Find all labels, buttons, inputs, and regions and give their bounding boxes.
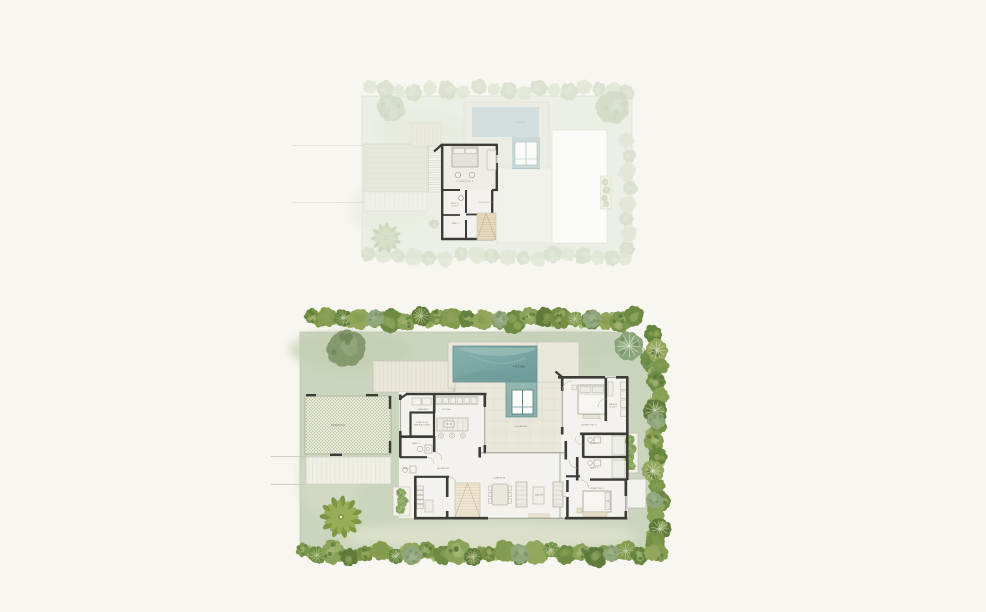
svg-text:RECIBIDOR: RECIBIDOR xyxy=(437,468,449,470)
svg-text:DORMITORIO 1: DORMITORIO 1 xyxy=(589,488,605,490)
svg-text:INSTALACIONES: INSTALACIONES xyxy=(414,424,431,427)
svg-text:BAÑO 4: BAÑO 4 xyxy=(412,442,420,445)
svg-text:COCINA: COCINA xyxy=(442,408,451,411)
svg-text:PARKING: PARKING xyxy=(331,423,345,427)
svg-text:ASEO: ASEO xyxy=(403,467,409,470)
svg-text:WALK-IN: WALK-IN xyxy=(451,202,460,205)
svg-text:BAÑO 2: BAÑO 2 xyxy=(590,442,598,445)
svg-text:DORMITORIO P: DORMITORIO P xyxy=(457,181,474,183)
svg-text:DORMITORIO 2: DORMITORIO 2 xyxy=(581,425,597,427)
svg-text:BAÑO P: BAÑO P xyxy=(452,222,460,225)
svg-text:PISCINA: PISCINA xyxy=(513,364,525,368)
svg-text:SALÓN: SALÓN xyxy=(535,494,543,497)
svg-text:CUARTO DE: CUARTO DE xyxy=(416,421,429,424)
svg-text:WALK-IN: WALK-IN xyxy=(609,403,618,406)
svg-text:BAÑO 3: BAÑO 3 xyxy=(590,467,598,470)
svg-text:CLOSET: CLOSET xyxy=(451,206,460,208)
svg-text:DISTRIBUIDOR: DISTRIBUIDOR xyxy=(479,202,494,204)
svg-text:PISCINA: PISCINA xyxy=(515,121,525,124)
svg-text:LAVADERO: LAVADERO xyxy=(417,408,429,411)
svg-text:COMEDOR: COMEDOR xyxy=(493,478,506,480)
svg-text:SOLARIUM: SOLARIUM xyxy=(515,425,528,428)
svg-text:CLOSET: CLOSET xyxy=(609,407,617,409)
